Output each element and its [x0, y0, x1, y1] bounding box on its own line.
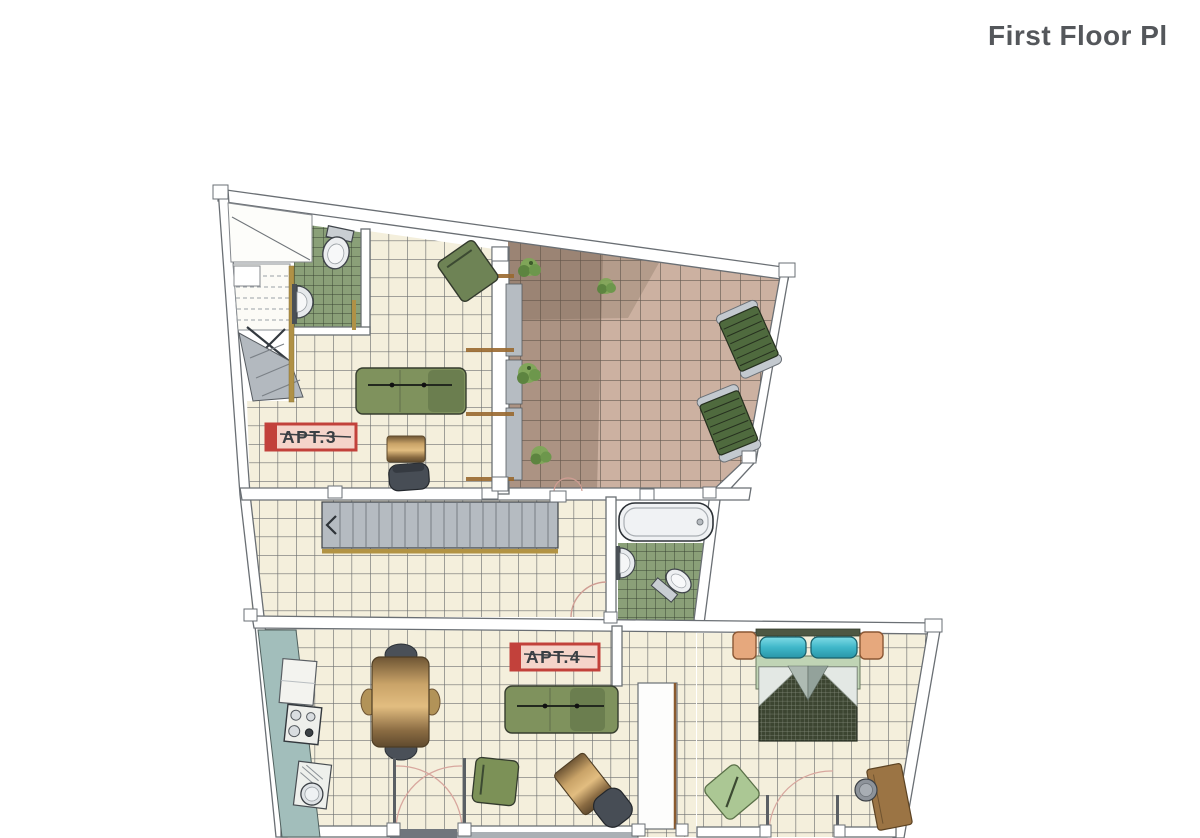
bed-pillow — [811, 637, 857, 658]
wall-bath3-bottom — [290, 327, 370, 335]
page-title: First Floor Pl — [988, 20, 1168, 52]
sofa — [505, 686, 618, 733]
nightstand — [733, 632, 756, 659]
kitchen-sink — [293, 761, 331, 809]
apt4-label-text: APT.4 — [526, 647, 581, 667]
desk-chair — [855, 779, 877, 801]
dining-table — [372, 657, 429, 747]
sofa — [356, 368, 466, 414]
bath3-door — [352, 300, 356, 330]
side-table — [387, 436, 425, 462]
wall-stub-apt4 — [612, 626, 622, 686]
wall-bottom-bed-a — [697, 827, 767, 837]
apt3-label-text: APT.3 — [282, 427, 337, 447]
kitchen-cabinet — [279, 659, 317, 706]
stair-duct — [234, 266, 260, 286]
dining-set — [361, 644, 440, 760]
wall-bath3-right — [361, 229, 370, 333]
stove — [284, 704, 322, 744]
apt4-label: APT.4 — [511, 644, 599, 670]
apt3-label: APT.3 — [266, 424, 356, 450]
scanned-floor-plan-page: First Floor Pl — [0, 0, 1200, 838]
bed-pillow — [760, 637, 806, 658]
bathtub — [619, 503, 713, 541]
armchair — [472, 757, 519, 806]
chair — [388, 463, 430, 492]
wall-hall-bath4 — [606, 497, 616, 621]
nightstand — [860, 632, 883, 659]
floor-plan-drawing: APT.3 APT.4 — [0, 0, 1200, 838]
wardrobe — [638, 683, 677, 829]
